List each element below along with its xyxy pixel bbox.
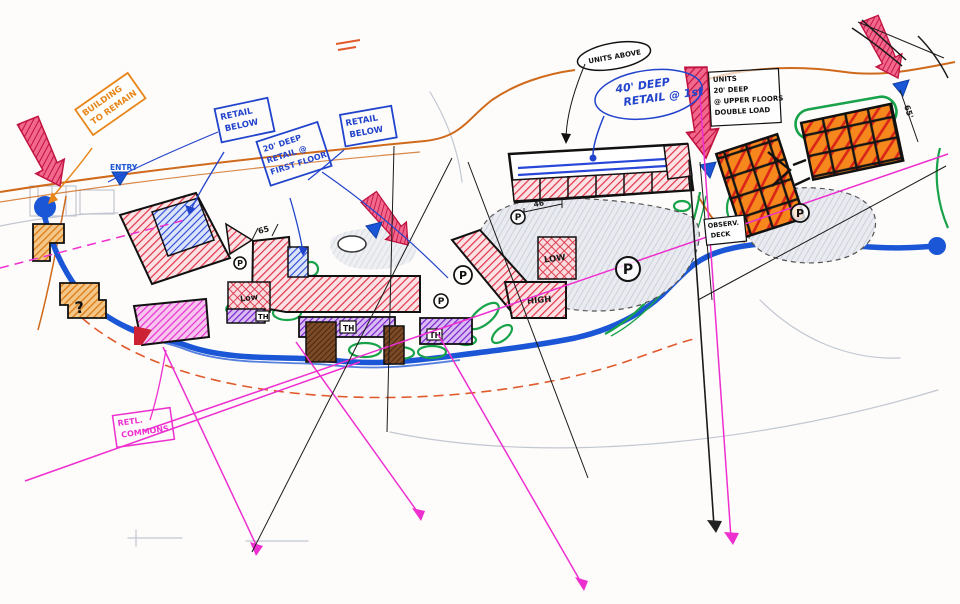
parking-symbol: P bbox=[616, 257, 640, 281]
svg-text:P: P bbox=[515, 213, 522, 223]
note-building-to-remain: BUILDING TO REMAIN bbox=[75, 73, 145, 135]
parking-symbol: P bbox=[511, 210, 525, 224]
parking-symbol: P bbox=[454, 266, 472, 284]
svg-text:P: P bbox=[438, 297, 445, 307]
plaza-oval bbox=[338, 236, 366, 252]
svg-text:TH: TH bbox=[258, 313, 269, 321]
dim-65-right: 65' bbox=[902, 104, 915, 120]
svg-text:P: P bbox=[237, 259, 243, 268]
building-red-triangle bbox=[226, 224, 252, 254]
note-observ-deck: OBSERV. DECK bbox=[704, 215, 746, 245]
svg-text:P: P bbox=[796, 207, 804, 220]
site-plan-sketch: ? Low HIGH LOW TH TH TH bbox=[0, 0, 960, 604]
building-long-mixeduse bbox=[509, 144, 693, 202]
note-units-above: UNITS ABOVE bbox=[575, 37, 652, 75]
view-arrow-west bbox=[12, 113, 74, 193]
entry-label: ENTRY bbox=[110, 163, 138, 172]
svg-text:P: P bbox=[623, 262, 633, 278]
svg-text:P: P bbox=[459, 269, 467, 282]
svg-text:TH: TH bbox=[343, 324, 354, 333]
svg-text:UNITS: UNITS bbox=[713, 75, 737, 84]
note-retail-below-mid: RETAIL BELOW bbox=[340, 106, 397, 147]
note-retail-20-deep: 20' DEEP RETAIL @ FIRST FLOOR bbox=[256, 122, 331, 186]
note-units-upper: UNITS 20' DEEP @ UPPER FLOORS DOUBLE LOA… bbox=[708, 68, 784, 126]
high-label: HIGH bbox=[527, 295, 552, 307]
parking-symbol: P bbox=[791, 204, 809, 222]
note-retail-commons: RETL. COMMONS bbox=[113, 408, 175, 448]
mews-block-1 bbox=[306, 322, 336, 362]
roundabout-right bbox=[928, 237, 946, 255]
dim-65: 65 bbox=[257, 224, 271, 236]
building-units-B bbox=[801, 104, 903, 180]
entry-marker-3 bbox=[700, 162, 716, 178]
parking-symbol: P bbox=[434, 294, 448, 308]
note-retail-below-west: RETAIL BELOW bbox=[215, 98, 275, 142]
svg-text:RETL.: RETL. bbox=[117, 416, 143, 428]
sketch-canvas: ? Low HIGH LOW TH TH TH bbox=[0, 0, 960, 604]
parking-symbol: P bbox=[234, 257, 246, 269]
